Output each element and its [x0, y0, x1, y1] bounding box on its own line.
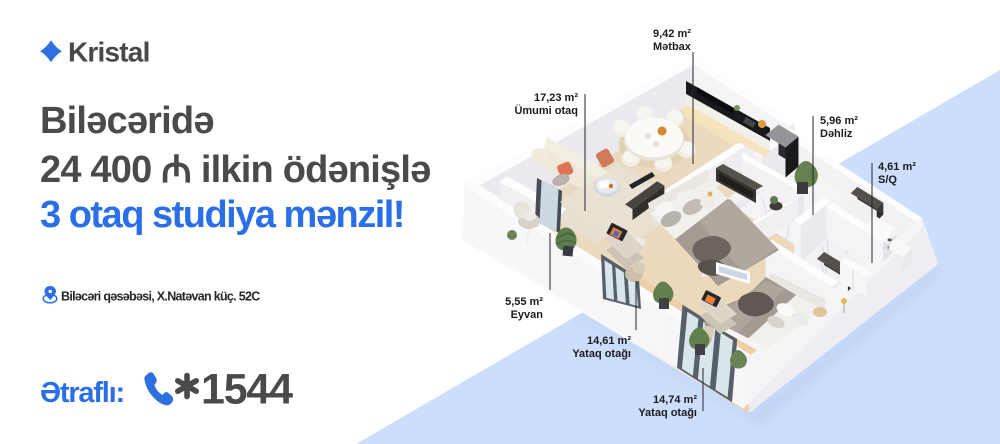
svg-text:Yataq otağı: Yataq otağı	[638, 407, 697, 419]
svg-text:9,42 m²: 9,42 m²	[653, 28, 691, 40]
svg-text:Dəhliz: Dəhliz	[820, 128, 853, 140]
svg-text:14,61 m²: 14,61 m²	[587, 335, 631, 347]
svg-text:Eyvan: Eyvan	[511, 309, 544, 321]
svg-text:5,96 m²: 5,96 m²	[820, 115, 858, 127]
svg-text:S/Q: S/Q	[878, 174, 897, 186]
svg-text:Kristal: Kristal	[68, 37, 150, 68]
svg-text:Biləcəri qəsəbəsi, X.Natəvan k: Biləcəri qəsəbəsi, X.Natəvan küç. 52C	[61, 290, 260, 304]
svg-text:Ümumi otaq: Ümumi otaq	[514, 104, 578, 117]
svg-text:1544: 1544	[201, 366, 293, 414]
svg-text:4,61 m²: 4,61 m²	[878, 161, 916, 173]
svg-text:Yataq otağı: Yataq otağı	[572, 348, 631, 360]
svg-text:Ətraflı:: Ətraflı:	[40, 377, 124, 409]
svg-text:17,23 m²: 17,23 m²	[534, 92, 578, 104]
svg-text:24 400 ₼ ilkin ödənişlə: 24 400 ₼ ilkin ödənişlə	[40, 149, 430, 191]
svg-text:Mətbax: Mətbax	[653, 41, 692, 53]
svg-text:Biləcəridə: Biləcəridə	[40, 100, 214, 142]
svg-text:14,74 m²: 14,74 m²	[653, 394, 697, 406]
svg-text:3 otaq studiya mənzil!: 3 otaq studiya mənzil!	[40, 194, 404, 236]
svg-text:5,55 m²: 5,55 m²	[505, 296, 543, 308]
